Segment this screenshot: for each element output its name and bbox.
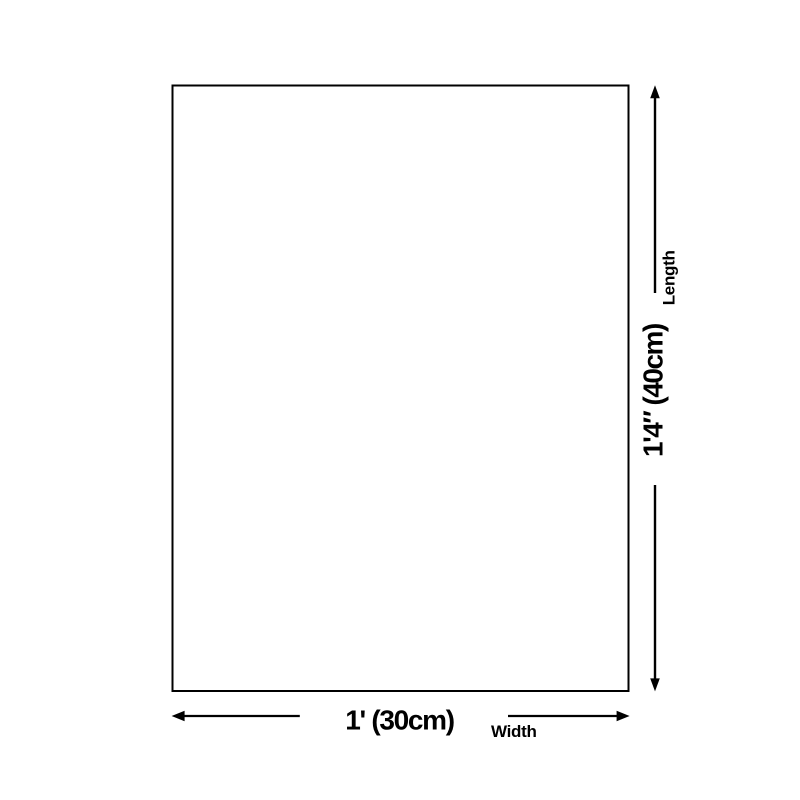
svg-text:1' (30cm): 1' (30cm) [345, 704, 454, 735]
svg-text:Width: Width [491, 722, 537, 741]
svg-text:1'4″ (40cm): 1'4″ (40cm) [638, 324, 669, 457]
svg-text:Length: Length [660, 250, 679, 305]
